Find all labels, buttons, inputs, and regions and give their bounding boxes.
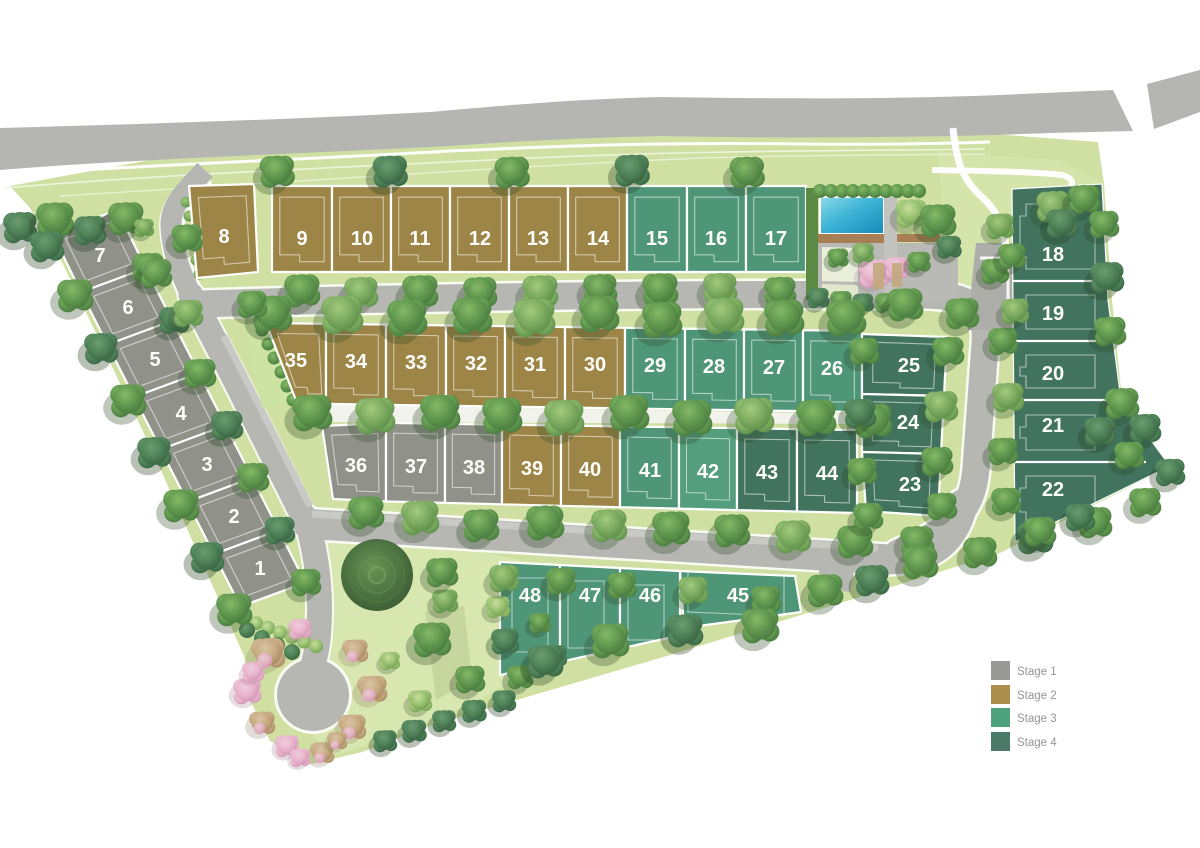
svg-text:5: 5 — [149, 349, 160, 371]
svg-text:32: 32 — [465, 353, 487, 375]
svg-text:41: 41 — [639, 460, 661, 482]
svg-text:26: 26 — [821, 358, 843, 380]
svg-text:8: 8 — [218, 226, 229, 248]
svg-text:42: 42 — [697, 461, 719, 483]
svg-text:23: 23 — [899, 474, 921, 496]
svg-text:40: 40 — [579, 459, 601, 481]
svg-text:43: 43 — [756, 462, 778, 484]
svg-text:31: 31 — [524, 354, 546, 376]
svg-text:Stage 4: Stage 4 — [1017, 737, 1057, 749]
svg-text:47: 47 — [579, 585, 601, 607]
svg-text:Stage 1: Stage 1 — [1017, 666, 1057, 678]
svg-text:25: 25 — [898, 355, 920, 377]
svg-text:1: 1 — [254, 558, 265, 580]
svg-text:36: 36 — [345, 455, 367, 477]
svg-text:Stage 2: Stage 2 — [1017, 690, 1057, 702]
svg-text:12: 12 — [469, 228, 491, 250]
svg-text:29: 29 — [644, 355, 666, 377]
svg-text:10: 10 — [351, 228, 373, 250]
svg-text:16: 16 — [705, 228, 727, 250]
svg-text:22: 22 — [1042, 479, 1064, 501]
svg-text:38: 38 — [463, 457, 485, 479]
svg-text:6: 6 — [122, 297, 133, 319]
svg-text:44: 44 — [816, 463, 839, 485]
svg-text:20: 20 — [1042, 363, 1064, 385]
svg-text:34: 34 — [345, 351, 368, 373]
svg-text:Stage 3: Stage 3 — [1017, 713, 1057, 725]
svg-text:15: 15 — [646, 228, 668, 250]
svg-text:33: 33 — [405, 352, 427, 374]
svg-text:21: 21 — [1042, 415, 1064, 437]
svg-text:19: 19 — [1042, 303, 1064, 325]
svg-text:24: 24 — [897, 412, 920, 434]
svg-text:3: 3 — [201, 454, 212, 476]
svg-text:46: 46 — [639, 585, 661, 607]
svg-text:30: 30 — [584, 354, 606, 376]
svg-text:14: 14 — [587, 228, 610, 250]
svg-text:27: 27 — [763, 357, 785, 379]
svg-text:39: 39 — [521, 458, 543, 480]
svg-text:28: 28 — [703, 356, 725, 378]
svg-text:4: 4 — [175, 403, 187, 425]
svg-text:7: 7 — [94, 245, 105, 267]
svg-text:13: 13 — [527, 228, 549, 250]
svg-text:17: 17 — [765, 228, 787, 250]
svg-text:35: 35 — [285, 350, 307, 372]
svg-text:48: 48 — [519, 585, 541, 607]
svg-text:2: 2 — [228, 506, 239, 528]
svg-text:37: 37 — [405, 456, 427, 478]
svg-text:18: 18 — [1042, 244, 1064, 266]
svg-text:11: 11 — [409, 228, 430, 250]
svg-text:9: 9 — [296, 228, 307, 250]
